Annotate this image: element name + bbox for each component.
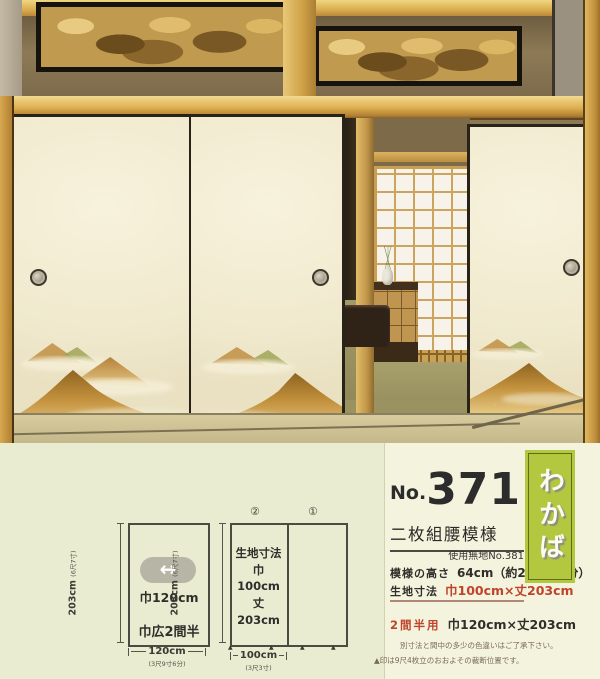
fusuma-door-3 [467,124,592,420]
panel-width-value: 100cm [240,650,277,661]
panel-1-mark: ① [308,505,318,518]
transom-carving-right [314,26,522,86]
height-shaku: (6尺7寸) [69,550,77,576]
series-name-text: わかば [532,467,569,566]
footnote-cut-position: ▲印は9尺4枚立のおおよその裁断位置です。 [374,655,524,666]
height-shaku: (6尺7寸) [171,550,179,576]
product-number-value: 371 [426,471,521,508]
cut-mark-icon: ▲ [300,644,305,651]
height-value: 203cm [67,580,78,615]
interior-post [356,118,374,413]
spec-label: 模様の高さ [390,565,450,581]
width-arrow-icon: ↔ [140,557,196,583]
room-interior [338,118,470,413]
option-value: 巾120cm×丈203cm [448,614,577,633]
fabric-width: 巾100cm [232,562,285,595]
series-name-border: わかば [528,453,572,580]
series-name-label: わかば [525,450,575,583]
footnote-color-difference: 別寸法と間中の多少の色違いはご了承下さい。 [400,640,558,651]
height-dimension: 203cm (6尺7寸) [108,523,122,643]
panel-width-dimension: 100cm [230,650,287,661]
spec-row-wide-option: 2間半用 巾120cm×丈203cm [390,614,576,633]
low-table [340,305,390,347]
fabric-size-title: 生地寸法 [232,545,285,562]
right-pillar [583,0,600,443]
plain-paper-reference: 使用無地No.381 [390,547,524,562]
spec-underline [390,600,524,602]
door-pull-icon [312,269,329,286]
diagram-name: 巾広2間半 [130,621,208,640]
fabric-size-note: 生地寸法 巾100cm 丈203cm [232,545,285,628]
fabric-height: 丈203cm [232,595,285,628]
flower-vase [382,268,393,285]
catalog-page: 203cm (6尺7寸) ↔ 巾120cm 巾広2間半 120cm (3尺9寸6… [0,0,600,679]
height-dimension: 203cm (6尺7寸) [210,523,224,643]
panel-2-mark: ② [250,505,260,518]
product-number: No. 371 [390,471,521,508]
counter-top [374,282,418,290]
door-pull-icon [563,259,580,276]
room-photo [0,0,600,443]
transom-post [283,0,316,98]
left-pillar [0,96,14,443]
product-number-prefix: No. [390,482,426,504]
cut-mark-icon: ▲ [331,644,336,651]
info-panel: 203cm (6尺7寸) ↔ 巾120cm 巾広2間半 120cm (3尺9寸6… [0,443,600,679]
door-pull-icon [30,269,47,286]
fusuma-door-1 [10,114,198,438]
transom-carving-left [36,2,294,72]
width-shaku: (3尺9寸6分) [128,658,206,668]
panel-divider [287,525,289,645]
option-label: 2間半用 [390,617,441,633]
panel-width-shaku: (3尺3寸) [230,662,287,672]
height-value: 203cm [169,580,180,615]
width-value: 120cm [148,646,185,657]
fusuma-door-2 [189,114,345,438]
width-dimension: 120cm [128,646,206,657]
spec-label: 生地寸法 [390,583,438,599]
